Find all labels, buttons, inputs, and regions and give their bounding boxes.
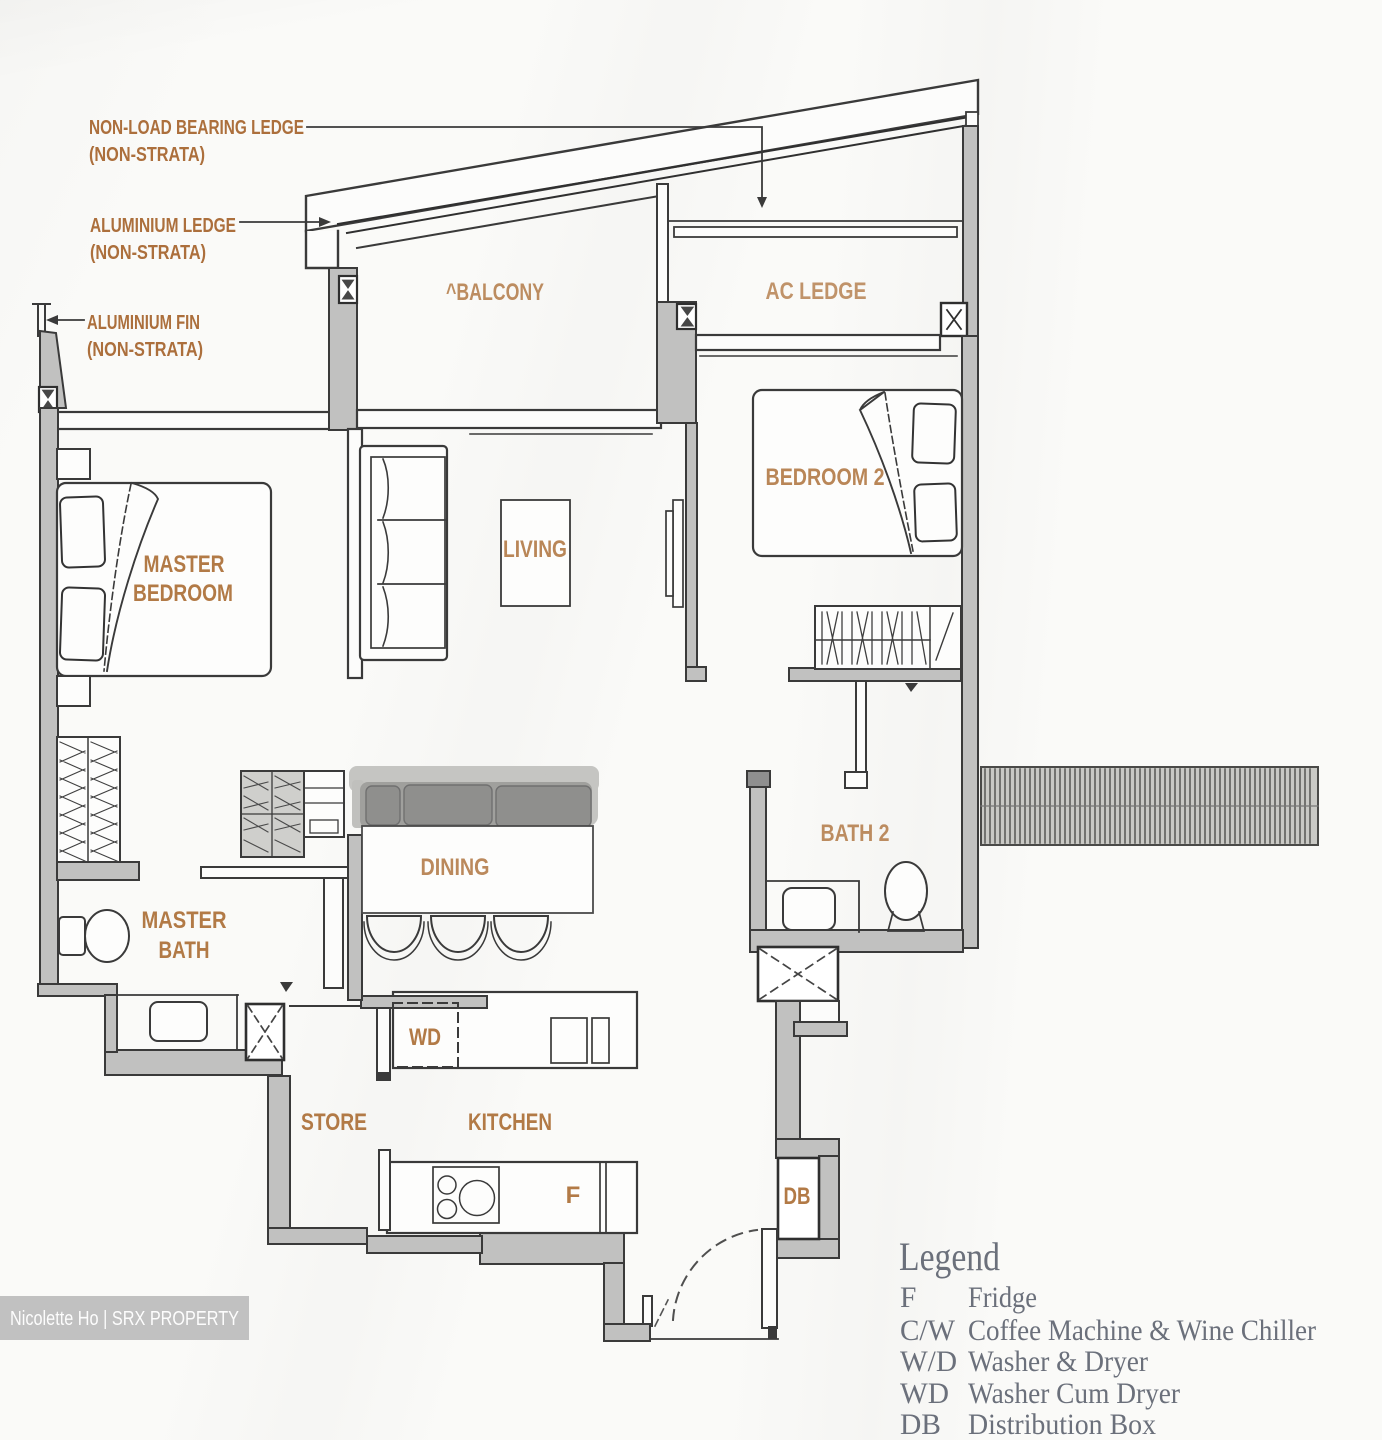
svg-text:F: F: [900, 1282, 916, 1314]
svg-text:Coffee Machine & Wine Chiller: Coffee Machine & Wine Chiller: [968, 1315, 1316, 1347]
svg-text:MASTER: MASTER: [144, 551, 225, 578]
svg-text:BATH 2: BATH 2: [821, 820, 890, 847]
svg-text:(NON-STRATA): (NON-STRATA): [89, 144, 205, 166]
svg-text:(NON-STRATA): (NON-STRATA): [87, 339, 203, 361]
svg-text:AC LEDGE: AC LEDGE: [766, 278, 867, 305]
svg-text:LIVING: LIVING: [503, 536, 567, 563]
svg-text:Legend: Legend: [899, 1234, 1000, 1279]
svg-text:ALUMINIUM LEDGE: ALUMINIUM LEDGE: [90, 215, 236, 237]
svg-text:NON-LOAD BEARING LEDGE: NON-LOAD BEARING LEDGE: [89, 117, 304, 139]
svg-text:BEDROOM 2: BEDROOM 2: [766, 464, 885, 491]
svg-text:Nicolette Ho | SRX PROPERTY: Nicolette Ho | SRX PROPERTY: [10, 1308, 239, 1330]
svg-text:MASTER: MASTER: [142, 907, 227, 934]
svg-text:ALUMINIUM FIN: ALUMINIUM FIN: [87, 312, 200, 334]
svg-text:^BALCONY: ^BALCONY: [446, 279, 544, 306]
svg-text:Fridge: Fridge: [968, 1282, 1037, 1314]
svg-text:Washer & Dryer: Washer & Dryer: [968, 1346, 1148, 1378]
svg-text:DB: DB: [900, 1409, 941, 1440]
svg-text:F: F: [566, 1182, 581, 1209]
svg-text:DINING: DINING: [421, 854, 490, 881]
svg-text:(NON-STRATA): (NON-STRATA): [90, 242, 206, 264]
svg-text:WD: WD: [900, 1378, 949, 1410]
svg-text:WD: WD: [409, 1024, 441, 1051]
svg-text:BATH: BATH: [159, 937, 210, 964]
svg-text:STORE: STORE: [301, 1109, 367, 1136]
svg-text:BEDROOM: BEDROOM: [133, 580, 233, 607]
svg-text:Washer Cum Dryer: Washer Cum Dryer: [968, 1378, 1180, 1410]
svg-text:C/W: C/W: [900, 1315, 955, 1347]
svg-text:W/D: W/D: [900, 1346, 957, 1378]
svg-text:DB: DB: [784, 1183, 811, 1210]
svg-text:Distribution Box: Distribution Box: [968, 1409, 1156, 1440]
svg-text:KITCHEN: KITCHEN: [468, 1109, 552, 1136]
